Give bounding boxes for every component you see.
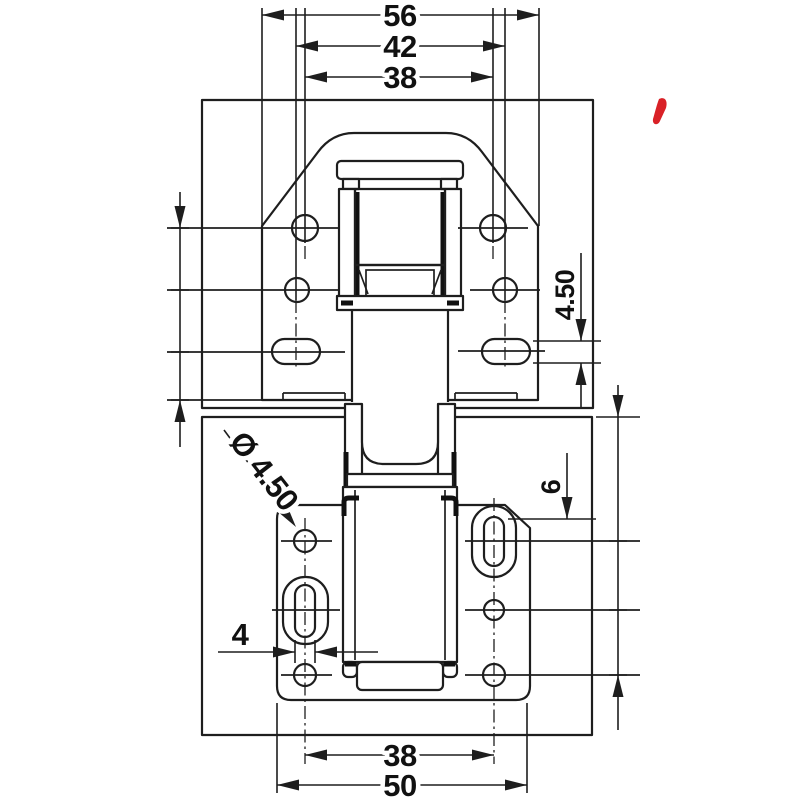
cup-rail-left — [339, 189, 355, 305]
dim-top-42-label: 42 — [383, 29, 416, 64]
dim-4-label: 4 — [232, 617, 250, 652]
dim-flange-slot-height-group: 4.50 — [533, 253, 601, 407]
dim-450-label: 4.50 — [550, 270, 580, 321]
hinge-arm-lower — [343, 487, 457, 690]
hinge-dimension-drawing: 56 42 38 4.50 6 Ø 4.50 — [0, 0, 800, 800]
hinge-link — [344, 402, 456, 500]
dim-right-chain-group — [596, 385, 640, 730]
cup-cap — [337, 161, 463, 179]
red-pen-mark — [653, 98, 667, 124]
dim-plate-slot-offset-group: 6 — [508, 453, 596, 519]
lower-arm-body — [343, 487, 457, 662]
drawing-canvas: 56 42 38 4.50 6 Ø 4.50 — [0, 0, 800, 800]
cup-bottom-bar — [337, 296, 463, 310]
dim-left-chain-group — [171, 192, 189, 447]
dim-bottom-group: 38 50 — [277, 703, 527, 800]
link-u-curve — [362, 404, 438, 464]
link-crossbar — [347, 474, 453, 487]
dim-bottom-50-label: 50 — [383, 768, 416, 800]
hole-diameter-label: Ø 4.50 — [222, 425, 305, 518]
hinge-arm-upper-body — [352, 305, 448, 410]
cup-rail-right — [445, 189, 461, 305]
dim-6-label: 6 — [536, 479, 566, 494]
dim-top-38-label: 38 — [383, 60, 417, 95]
lower-arm-foot — [357, 662, 443, 690]
